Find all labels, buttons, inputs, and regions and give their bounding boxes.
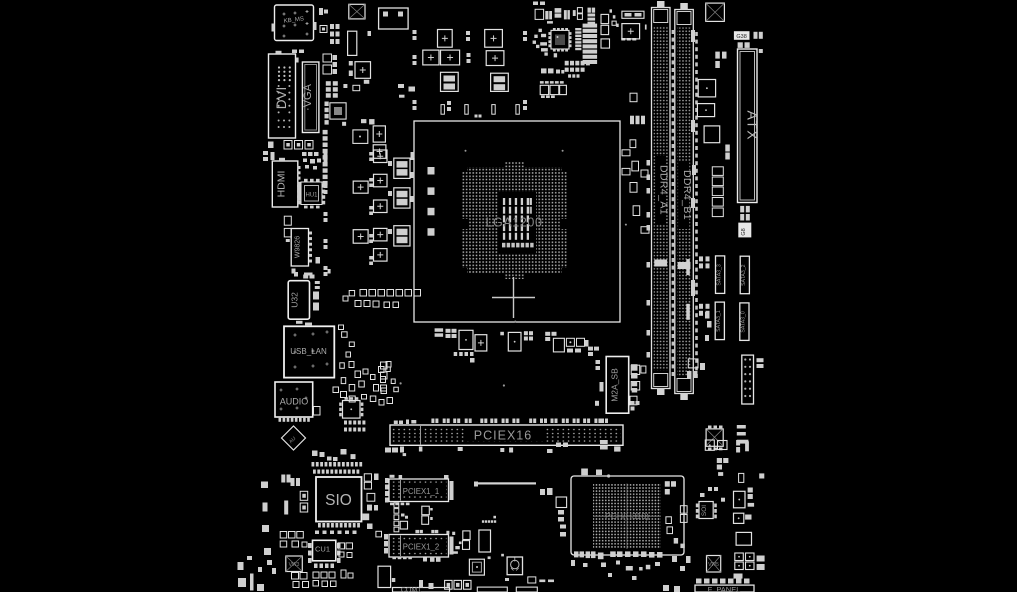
svg-text:G38: G38 <box>736 34 746 40</box>
svg-text:SATA3_2: SATA3_2 <box>741 264 747 286</box>
svg-text:PCH(H310): PCH(H310) <box>605 511 649 521</box>
svg-text:PCIEX16: PCIEX16 <box>474 429 532 443</box>
svg-text:SIO: SIO <box>325 492 352 509</box>
svg-text:HU1: HU1 <box>305 193 318 199</box>
svg-text:SATA3_3: SATA3_3 <box>716 264 722 286</box>
svg-text:PCIEX1_2: PCIEX1_2 <box>403 542 439 551</box>
svg-text:DDR4_A1: DDR4_A1 <box>658 165 670 215</box>
svg-text:USB_LAN: USB_LAN <box>290 347 327 356</box>
svg-text:SOI: SOI <box>701 505 708 516</box>
svg-text:SATA3_1: SATA3_1 <box>716 310 722 332</box>
svg-text:PCIEX1_1: PCIEX1_1 <box>403 487 439 496</box>
svg-text:DVI: DVI <box>274 87 289 110</box>
svg-text:LGA1200: LGA1200 <box>485 216 542 230</box>
svg-text:W9826: W9826 <box>295 236 302 258</box>
svg-text:HDMI: HDMI <box>276 171 288 198</box>
svg-text:SATA3_0: SATA3_0 <box>741 311 747 333</box>
svg-text:F_PANEL: F_PANEL <box>708 585 741 592</box>
svg-text:VW5: VW5 <box>708 562 719 568</box>
svg-text:U32: U32 <box>290 292 300 308</box>
svg-text:COM1: COM1 <box>401 587 421 592</box>
svg-text:·VGA: ·VGA <box>302 83 314 111</box>
svg-text:CU1: CU1 <box>315 545 330 554</box>
svg-text:ATX: ATX <box>745 110 761 141</box>
svg-text:AUDIO: AUDIO <box>280 397 309 407</box>
svg-text:DDR4_B1: DDR4_B1 <box>681 170 693 220</box>
svg-text:VW3: VW3 <box>289 562 300 568</box>
svg-text:M2A_SB: M2A_SB <box>610 368 620 402</box>
svg-text:G8: G8 <box>741 228 747 235</box>
